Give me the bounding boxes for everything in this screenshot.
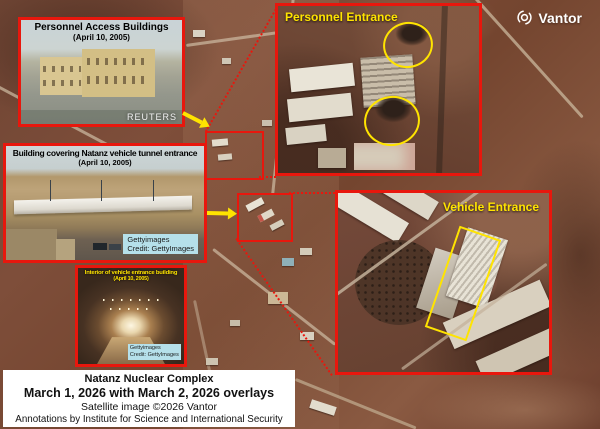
caption-dates: March 1, 2026 with March 2, 2026 overlay… — [3, 386, 295, 401]
building — [282, 258, 294, 266]
inset-title: Personnel Access Buildings (April 10, 20… — [21, 22, 182, 42]
building — [318, 148, 346, 168]
inset-title: Building covering Natanz vehicle tunnel … — [6, 148, 204, 167]
light-post — [50, 180, 51, 201]
vehicle — [93, 243, 107, 250]
connector-line — [259, 176, 276, 178]
inset-title-text: Personnel Access Buildings — [21, 22, 182, 33]
caption-block: Natanz Nuclear Complex March 1, 2026 wit… — [3, 370, 295, 427]
credit-line: Gettyimages — [127, 235, 194, 244]
credit-line: Credit: GettyImages — [127, 244, 194, 253]
light-post — [153, 180, 154, 201]
inset-personnel-entrance: Personnel Entrance — [275, 3, 482, 176]
inset-label: Vehicle Entrance — [443, 200, 539, 214]
building-left — [40, 57, 83, 94]
light-post — [101, 180, 102, 201]
building — [206, 358, 218, 365]
credit-line: Credit: GettyImages — [130, 352, 179, 359]
foreground-building — [6, 229, 57, 260]
inset-vehicle-entrance: Vehicle Entrance — [335, 190, 552, 375]
annotated-satellite-graphic: Personnel Access Buildings (April 10, 20… — [0, 0, 600, 429]
caption-annotations: Annotations by Institute for Science and… — [3, 414, 295, 426]
tunnel-lights — [110, 308, 152, 310]
inset-title: Interior of vehicle entrance building (A… — [78, 270, 184, 282]
building — [262, 120, 272, 126]
caption-site: Natanz Nuclear Complex — [3, 373, 295, 386]
vantor-watermark: Vantor — [516, 9, 582, 26]
credit-line: Gettyimages — [130, 345, 179, 352]
vantor-brand-text: Vantor — [538, 10, 582, 26]
credit-getty: Gettyimages Credit: GettyImages — [128, 344, 181, 360]
building — [300, 248, 312, 255]
inset-date: (April 10, 2005) — [6, 158, 204, 167]
tunnel-lights — [103, 299, 158, 301]
vehicle-entrance-target-box — [237, 193, 293, 242]
foreground-building — [56, 239, 76, 260]
vehicle — [109, 244, 121, 250]
building — [230, 320, 240, 326]
inset-tunnel-entrance-building: Building covering Natanz vehicle tunnel … — [3, 143, 207, 263]
credit-reuters: REUTERS — [127, 112, 177, 122]
inset-date: (April 10, 2005) — [21, 33, 182, 42]
inset-label: Personnel Entrance — [285, 10, 398, 24]
terrain-light-patch — [420, 375, 600, 429]
inset-personnel-access-buildings: Personnel Access Buildings (April 10, 20… — [18, 17, 185, 127]
caption-source: Satellite image ©2026 Vantor — [3, 401, 295, 414]
building — [222, 58, 231, 64]
inset-tunnel-interior: Interior of vehicle entrance building (A… — [75, 265, 187, 367]
building — [354, 143, 414, 170]
inset-date: (April 10, 2005) — [78, 276, 184, 282]
personnel-entrance-target-box — [205, 131, 264, 180]
connector-line — [289, 192, 335, 194]
building — [193, 30, 205, 37]
building-right — [82, 49, 154, 97]
credit-getty: Gettyimages Credit: GettyImages — [123, 234, 198, 255]
inset-title-text: Building covering Natanz vehicle tunnel … — [6, 148, 204, 158]
vantor-aperture-icon — [516, 9, 533, 26]
